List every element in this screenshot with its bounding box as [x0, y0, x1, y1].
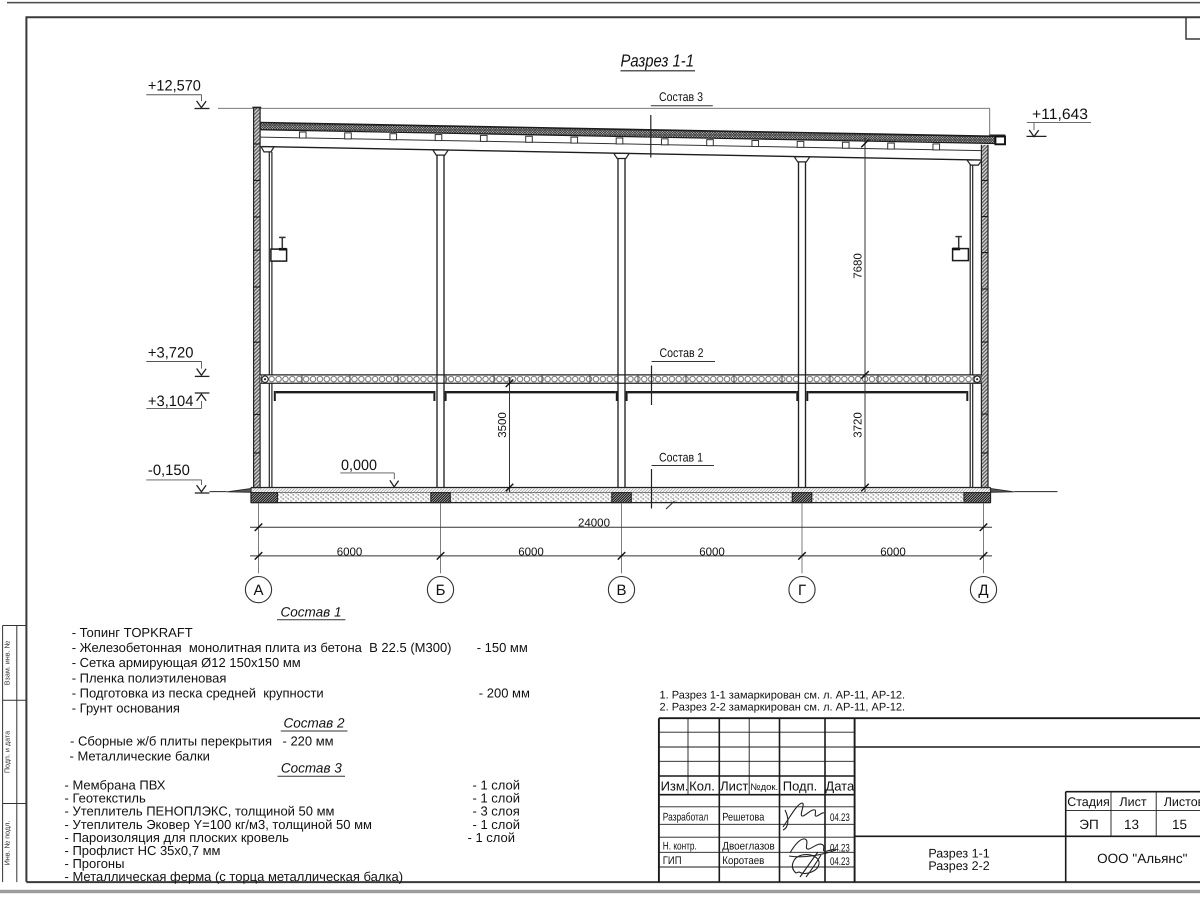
svg-text:3720: 3720 — [852, 412, 864, 438]
svg-text:Состав 3: Состав 3 — [659, 90, 703, 104]
svg-text:+11,643: +11,643 — [1032, 106, 1088, 123]
svg-text:- Грунт основания: - Грунт основания — [72, 701, 180, 716]
svg-text:6000: 6000 — [880, 546, 906, 558]
svg-text:ЭП: ЭП — [1079, 817, 1098, 832]
svg-text:Изм.: Изм. — [661, 779, 689, 794]
svg-text:- 1 слой: - 1 слой — [468, 830, 516, 845]
svg-text:13: 13 — [1124, 817, 1139, 832]
svg-text:- Топинг TOPKRAFT: - Топинг TOPKRAFT — [72, 625, 193, 640]
svg-text:- Железобетонная монолитная п: - Железобетонная монолитная плита из бет… — [72, 640, 452, 655]
svg-text:15: 15 — [1172, 817, 1187, 832]
svg-text:Стадия: Стадия — [1067, 795, 1110, 809]
svg-text:Кол.: Кол. — [689, 779, 715, 794]
svg-text:- Сетка армирующая Ø12 150x150: - Сетка армирующая Ø12 150x150 мм — [72, 655, 301, 670]
svg-text:- Металлические балки: - Металлические балки — [70, 748, 210, 763]
svg-text:Д: Д — [978, 582, 988, 599]
svg-text:- 150 мм: - 150 мм — [477, 640, 528, 655]
svg-text:Лист: Лист — [1119, 795, 1146, 809]
svg-text:Подп.: Подп. — [783, 779, 818, 794]
svg-text:- Металлическая ферма (с торца: - Металлическая ферма (с торца металличе… — [65, 869, 404, 884]
svg-text:-0,150: -0,150 — [148, 462, 190, 479]
svg-text:Н. контр.: Н. контр. — [663, 840, 697, 852]
svg-text:6000: 6000 — [337, 546, 363, 558]
svg-text:3500: 3500 — [497, 412, 509, 438]
svg-text:Решетова: Решетова — [722, 812, 765, 824]
svg-text:Состав 2: Состав 2 — [284, 716, 345, 731]
svg-text:+3,720: +3,720 — [148, 344, 194, 361]
svg-text:2. Разрез 2-2 замаркирован см.: 2. Разрез 2-2 замаркирован см. л. АР-11,… — [660, 701, 906, 713]
svg-text:Состав 1: Состав 1 — [281, 605, 342, 620]
svg-text:04.23: 04.23 — [830, 843, 850, 855]
svg-text:Состав 3: Состав 3 — [281, 761, 342, 776]
svg-text:Разработал: Разработал — [663, 812, 709, 824]
svg-text:1. Разрез 1-1 замаркирован см.: 1. Разрез 1-1 замаркирован см. л. АР-11,… — [660, 689, 906, 701]
svg-text:6000: 6000 — [518, 546, 544, 558]
svg-text:- Сборные ж/б плиты перекрытия: - Сборные ж/б плиты перекрытия — [70, 734, 272, 749]
svg-text:7680: 7680 — [852, 253, 864, 279]
svg-text:04.23: 04.23 — [830, 812, 850, 824]
svg-text:Коротаев: Коротаев — [722, 855, 764, 867]
svg-text:6000: 6000 — [699, 546, 725, 558]
svg-text:Г: Г — [798, 582, 806, 599]
svg-text:Б: Б — [436, 582, 446, 599]
svg-text:Листов: Листов — [1164, 795, 1200, 809]
svg-text:- 220 мм: - 220 мм — [283, 734, 334, 749]
svg-text:Состав 2: Состав 2 — [660, 346, 704, 360]
svg-text:Разрез 2-2: Разрез 2-2 — [928, 859, 989, 873]
svg-text:Взам. инв. №: Взам. инв. № — [3, 640, 12, 685]
svg-text:Разрез 1-1: Разрез 1-1 — [621, 51, 695, 71]
svg-text:04.23: 04.23 — [830, 856, 850, 868]
svg-text:+12,570: +12,570 — [148, 77, 201, 94]
svg-text:А: А — [253, 582, 263, 599]
svg-text:Инв. № подл.: Инв. № подл. — [3, 821, 12, 866]
svg-text:ООО "Альянс": ООО "Альянс" — [1097, 851, 1187, 866]
svg-text:+3,104: +3,104 — [148, 393, 194, 410]
svg-text:Состав 1: Состав 1 — [659, 451, 703, 465]
svg-text:ГИП: ГИП — [663, 855, 682, 867]
svg-text:Двоеглазов: Двоеглазов — [722, 840, 775, 852]
svg-text:Лист: Лист — [720, 779, 748, 794]
svg-text:В: В — [616, 582, 626, 599]
svg-text:24000: 24000 — [578, 518, 610, 530]
svg-text:№док.: №док. — [750, 782, 778, 793]
svg-text:- Пленка полиэтиленовая: - Пленка полиэтиленовая — [72, 670, 227, 685]
svg-text:0,000: 0,000 — [341, 457, 377, 474]
svg-text:- 200 мм: - 200 мм — [479, 686, 530, 701]
svg-text:Дата: Дата — [825, 779, 855, 794]
svg-text:- Подготовка из песка средней: - Подготовка из песка средней крупности — [72, 686, 324, 701]
svg-text:Подп. и дата: Подп. и дата — [3, 731, 12, 773]
